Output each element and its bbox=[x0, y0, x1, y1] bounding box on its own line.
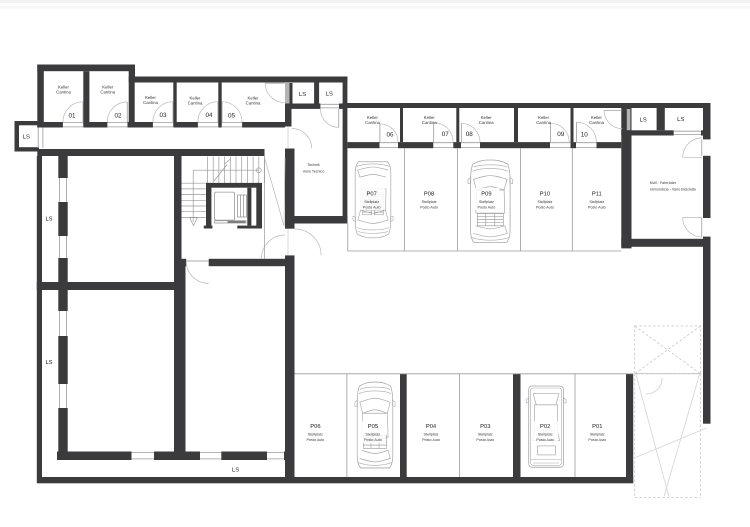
svg-text:Posto Auto: Posto Auto bbox=[536, 438, 554, 442]
svg-text:LS: LS bbox=[326, 90, 333, 97]
svg-text:Stellplatz: Stellplatz bbox=[422, 200, 437, 204]
svg-text:06: 06 bbox=[386, 131, 394, 138]
svg-text:Cantina: Cantina bbox=[422, 120, 437, 125]
svg-text:10: 10 bbox=[581, 131, 589, 138]
svg-text:P04: P04 bbox=[426, 423, 437, 430]
svg-text:Posto Auto: Posto Auto bbox=[422, 438, 440, 442]
svg-text:04: 04 bbox=[205, 112, 213, 119]
svg-text:01: 01 bbox=[68, 112, 76, 119]
svg-text:Cantina: Cantina bbox=[479, 120, 494, 125]
svg-text:P06: P06 bbox=[310, 423, 320, 430]
svg-text:Technik: Technik bbox=[307, 163, 320, 167]
svg-text:LS: LS bbox=[640, 117, 647, 124]
svg-text:Stellplatz: Stellplatz bbox=[478, 432, 493, 436]
svg-text:Cantina: Cantina bbox=[365, 120, 380, 125]
svg-text:P07: P07 bbox=[367, 191, 377, 198]
svg-text:P03: P03 bbox=[480, 423, 490, 430]
svg-text:Stellplatz: Stellplatz bbox=[538, 432, 553, 436]
svg-text:Cantina: Cantina bbox=[536, 120, 551, 125]
svg-text:Cantina: Cantina bbox=[589, 120, 604, 125]
svg-text:Vano Tecnico: Vano Tecnico bbox=[303, 169, 325, 173]
svg-text:Müll - Fahrräder: Müll - Fahrräder bbox=[650, 181, 677, 185]
svg-text:LS: LS bbox=[45, 359, 52, 366]
svg-text:09: 09 bbox=[557, 131, 565, 138]
svg-text:Posto Auto: Posto Auto bbox=[420, 206, 438, 210]
svg-text:P05: P05 bbox=[368, 423, 378, 430]
svg-text:Cantina: Cantina bbox=[56, 90, 71, 95]
svg-text:LS: LS bbox=[45, 216, 52, 223]
svg-text:Posto Auto: Posto Auto bbox=[536, 206, 554, 210]
svg-text:Posto Auto: Posto Auto bbox=[363, 206, 381, 210]
svg-text:07: 07 bbox=[442, 131, 450, 138]
svg-text:02: 02 bbox=[114, 112, 122, 119]
svg-text:LS: LS bbox=[232, 466, 239, 473]
svg-text:LS: LS bbox=[299, 91, 306, 98]
svg-text:Posto Auto: Posto Auto bbox=[306, 438, 324, 442]
svg-text:Posto Auto: Posto Auto bbox=[588, 206, 606, 210]
svg-text:Stellplatz: Stellplatz bbox=[537, 200, 552, 204]
svg-text:Stellplatz: Stellplatz bbox=[365, 432, 380, 436]
svg-text:Immondizie - Vano Biciclette: Immondizie - Vano Biciclette bbox=[650, 187, 696, 191]
svg-text:Cantina: Cantina bbox=[246, 101, 261, 106]
svg-text:Stellplatz: Stellplatz bbox=[308, 432, 323, 436]
svg-text:P10: P10 bbox=[540, 191, 550, 198]
svg-text:Posto Auto: Posto Auto bbox=[476, 438, 494, 442]
svg-text:Posto Auto: Posto Auto bbox=[588, 438, 606, 442]
svg-text:Posto Auto: Posto Auto bbox=[364, 438, 382, 442]
svg-text:Posto Auto: Posto Auto bbox=[477, 206, 495, 210]
svg-text:P01: P01 bbox=[592, 423, 602, 430]
svg-text:Cantina: Cantina bbox=[143, 100, 158, 105]
svg-text:05: 05 bbox=[228, 112, 236, 119]
svg-text:Stellplatz: Stellplatz bbox=[590, 432, 605, 436]
svg-text:P11: P11 bbox=[592, 192, 602, 198]
svg-text:LS: LS bbox=[23, 133, 30, 140]
svg-text:Stellplatz: Stellplatz bbox=[479, 200, 494, 204]
svg-text:Cantina: Cantina bbox=[100, 90, 115, 95]
svg-text:Stellplatz: Stellplatz bbox=[424, 432, 439, 436]
svg-text:08: 08 bbox=[466, 131, 474, 138]
svg-text:P08: P08 bbox=[424, 191, 434, 198]
svg-text:Stellplatz: Stellplatz bbox=[364, 200, 379, 204]
svg-text:P09: P09 bbox=[481, 191, 491, 198]
svg-text:Stellplatz: Stellplatz bbox=[589, 200, 604, 204]
svg-text:Cantina: Cantina bbox=[188, 101, 203, 106]
svg-text:LS: LS bbox=[677, 116, 684, 123]
svg-text:03: 03 bbox=[159, 112, 167, 119]
svg-text:P02: P02 bbox=[540, 423, 550, 430]
